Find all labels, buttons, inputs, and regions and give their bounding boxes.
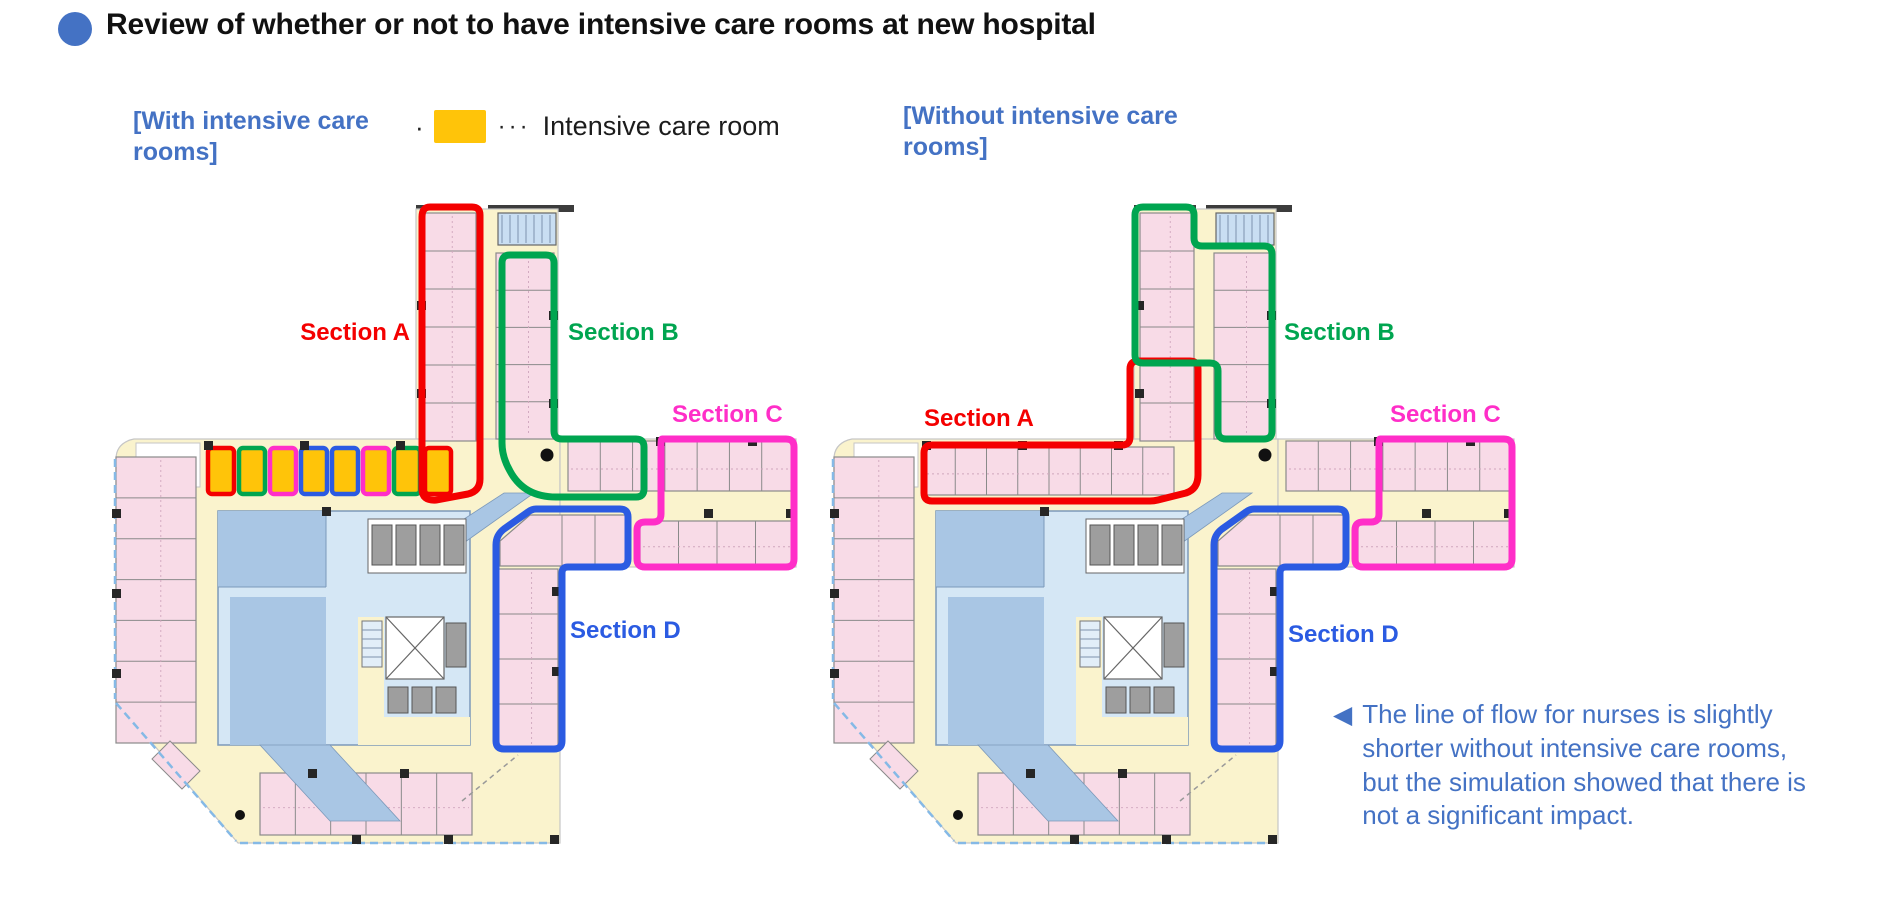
section-c-label: Section C xyxy=(672,401,783,429)
caption-with-icu: [With intensive care rooms] xyxy=(133,106,373,167)
title-bullet-icon xyxy=(58,12,92,46)
sw-column-dot xyxy=(953,810,963,820)
corridor-column-dot xyxy=(541,449,554,462)
legend-label: Intensive care room xyxy=(543,113,780,140)
caption-without-icu: [Without intensive care rooms] xyxy=(903,101,1253,162)
page-title: Review of whether or not to have intensi… xyxy=(106,8,1096,42)
west-wing-rooms xyxy=(924,447,1174,495)
left-triangle-arrow-icon: ◀ xyxy=(1333,700,1352,731)
note-text: The line of flow for nurses is slightly … xyxy=(1362,698,1824,833)
floor-plan-with-icu: Section ASection BSection CSection D xyxy=(100,193,800,853)
section-a-label: Section A xyxy=(258,319,410,347)
section-d-label: Section D xyxy=(1288,621,1399,649)
section-d-label: Section D xyxy=(570,617,681,645)
section-b-label: Section B xyxy=(1284,319,1395,347)
legend-bullet: · xyxy=(415,114,424,140)
sw-column-dot xyxy=(235,810,245,820)
section-a-label: Section A xyxy=(924,405,1034,433)
slide-title-row: Review of whether or not to have intensi… xyxy=(58,8,1096,46)
legend-dots: ··· xyxy=(498,115,531,139)
section-b-label: Section B xyxy=(568,319,679,347)
section-c-label: Section C xyxy=(1390,401,1501,429)
legend: · ··· Intensive care room xyxy=(415,110,780,143)
conclusion-note: ◀ The line of flow for nurses is slightl… xyxy=(1333,698,1853,833)
floor-plan-svg xyxy=(100,193,800,853)
corridor-column-dot xyxy=(1259,449,1272,462)
intensive-care-room-swatch-icon xyxy=(434,110,486,143)
